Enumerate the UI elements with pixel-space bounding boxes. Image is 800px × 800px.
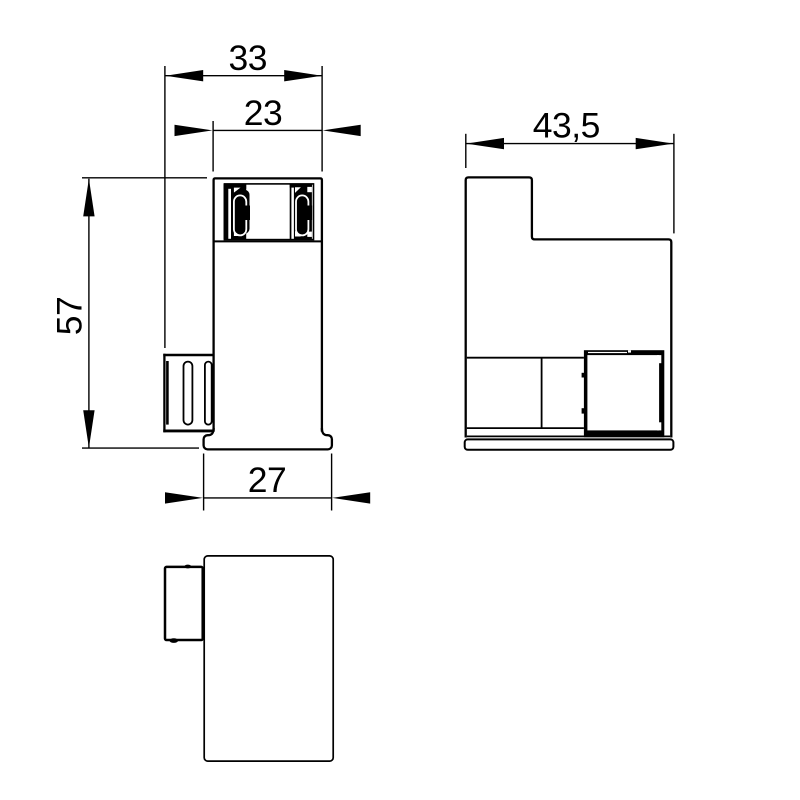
svg-text:27: 27 <box>248 460 287 500</box>
svg-text:57: 57 <box>50 297 90 336</box>
svg-text:43,5: 43,5 <box>533 106 600 146</box>
svg-text:23: 23 <box>244 93 283 133</box>
svg-text:33: 33 <box>229 38 268 78</box>
